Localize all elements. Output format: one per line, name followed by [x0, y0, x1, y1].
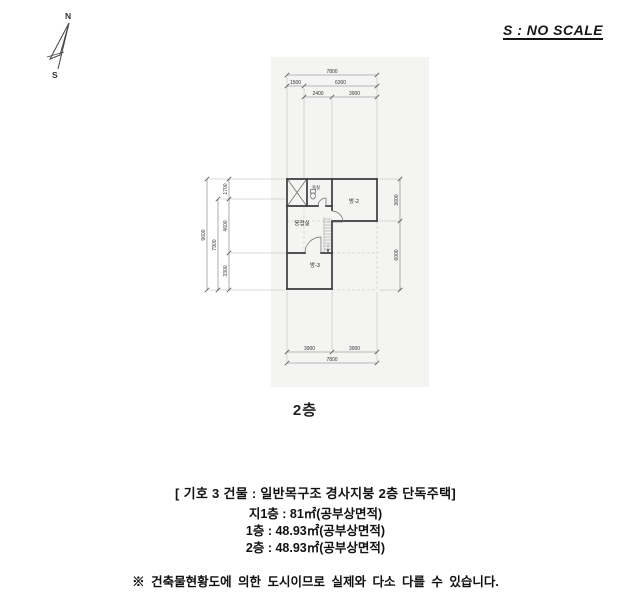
disclaimer: ※ 건축물현황도에 의한 도시이므로 실제와 다소 다를 수 있습니다.	[0, 571, 631, 590]
area-basement: 지1층 : 81㎡(공부상면적)	[0, 506, 631, 523]
dim-left-4600: 4600	[223, 220, 229, 231]
room-label-livingroom: 응접실	[294, 219, 309, 227]
dim-top-3900: 3900	[349, 91, 360, 97]
compass-needle-icon	[47, 23, 69, 69]
room-label-room2: 방-2	[349, 197, 359, 205]
dim-bottom-overall: 7800	[326, 357, 337, 363]
dim-top-overall: 7800	[326, 69, 337, 75]
dim-left-1700: 1700	[223, 183, 229, 194]
dim-top-1500: 1500	[290, 80, 301, 86]
area-second-floor: 2층 : 48.93㎡(공부상면적)	[0, 540, 631, 557]
dim-left-3300: 3300	[223, 265, 229, 276]
dim-right-3600: 3600	[394, 194, 400, 205]
dim-top-2400: 2400	[312, 91, 323, 97]
scale-note: S : NO SCALE	[503, 22, 603, 40]
room-label-bathroom: 욕실	[312, 184, 320, 191]
dim-right-6000: 6000	[394, 249, 400, 260]
floor-plan: 7800 1500 6300 2400 3900 9600 7900 1700 …	[185, 55, 435, 390]
dim-left-7900: 7900	[212, 239, 218, 250]
room-label-room3: 방-3	[310, 261, 320, 269]
page: N S S : NO SCALE	[0, 0, 631, 600]
floor-label: 2층	[265, 399, 345, 420]
dim-top-6300: 6300	[335, 80, 346, 86]
dim-bottom-3900-left: 3900	[304, 346, 315, 352]
compass-north-arrow: N S	[28, 5, 94, 83]
area-first-floor: 1층 : 48.93㎡(공부상면적)	[0, 523, 631, 540]
dim-left-overall: 9600	[201, 229, 207, 240]
compass-south-label: S	[52, 70, 58, 80]
notes-block: [ 기호 3 건물 : 일반목구조 경사지붕 2층 단독주택] 지1층 : 81…	[0, 483, 631, 590]
left-dimensions: 9600 7900 1700 4600 3300	[201, 177, 231, 292]
compass-north-label: N	[65, 11, 71, 21]
dim-bottom-3900-right: 3900	[349, 346, 360, 352]
building-title: [ 기호 3 건물 : 일반목구조 경사지붕 2층 단독주택]	[0, 483, 631, 502]
